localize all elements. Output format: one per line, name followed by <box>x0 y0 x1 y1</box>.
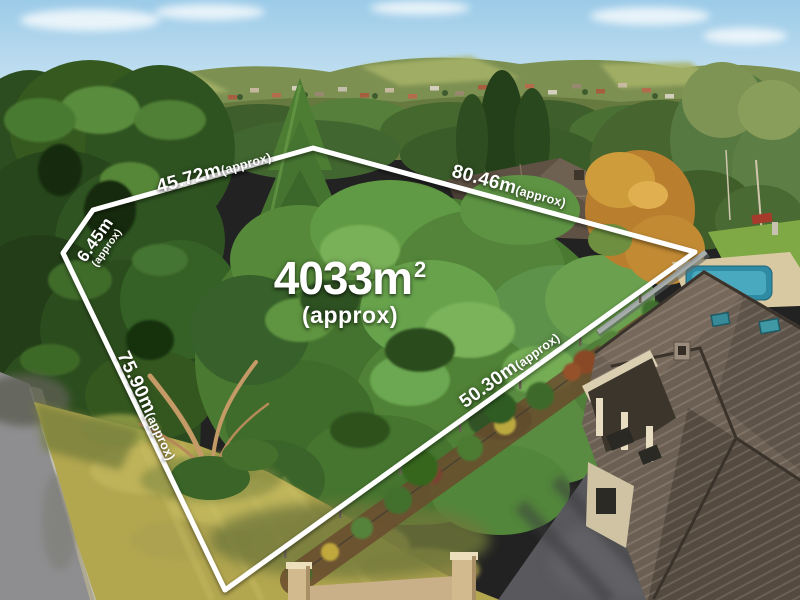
area-superscript: 2 <box>414 257 426 282</box>
area-approx: (approx) <box>274 304 426 327</box>
area-value: 4033m <box>274 252 412 304</box>
area-label: 4033m2 (approx) <box>274 255 426 327</box>
aerial-property-photo: 45.72m(approx) 80.46m(approx) 6.45m(appr… <box>0 0 800 600</box>
area-value-line: 4033m2 <box>274 281 426 298</box>
